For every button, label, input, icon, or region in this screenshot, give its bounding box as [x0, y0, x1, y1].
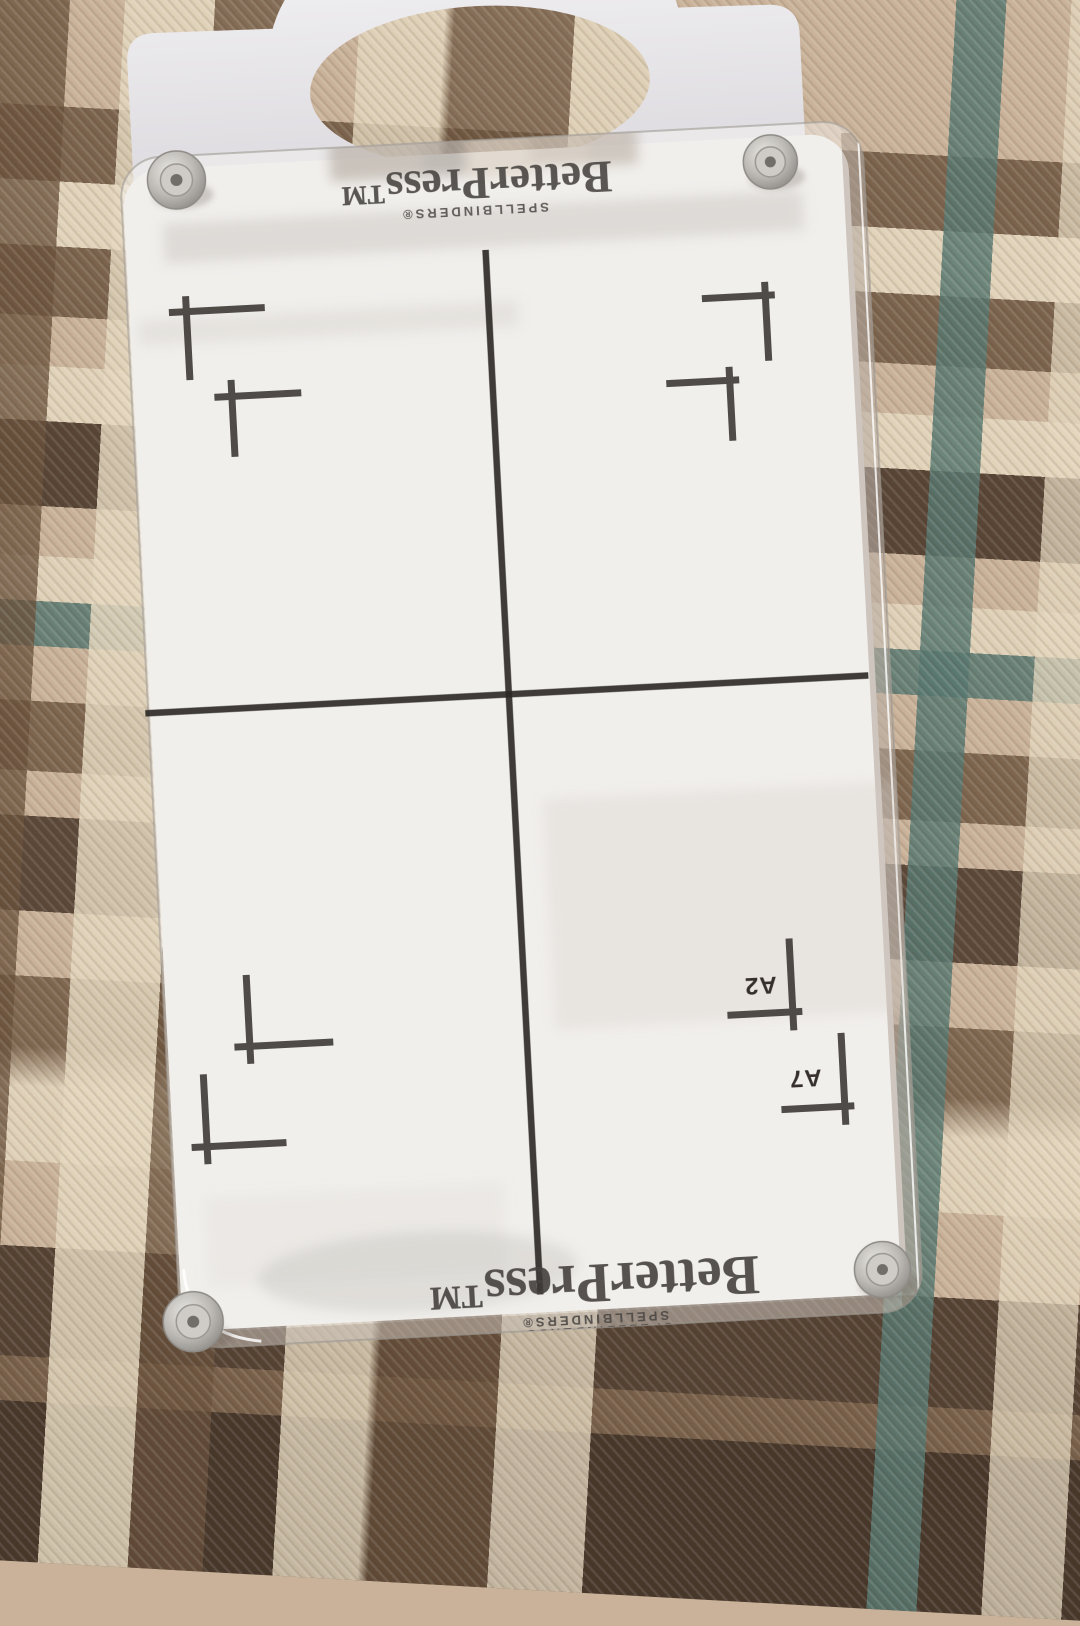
- label-a2: A2: [743, 971, 777, 1000]
- acrylic-plate: [119, 120, 923, 1349]
- press-plate-assembly: A2 A7 BetterPress™ SPELLBINDERS® BetterP…: [0, 0, 1080, 1440]
- label-a7: A7: [788, 1063, 822, 1092]
